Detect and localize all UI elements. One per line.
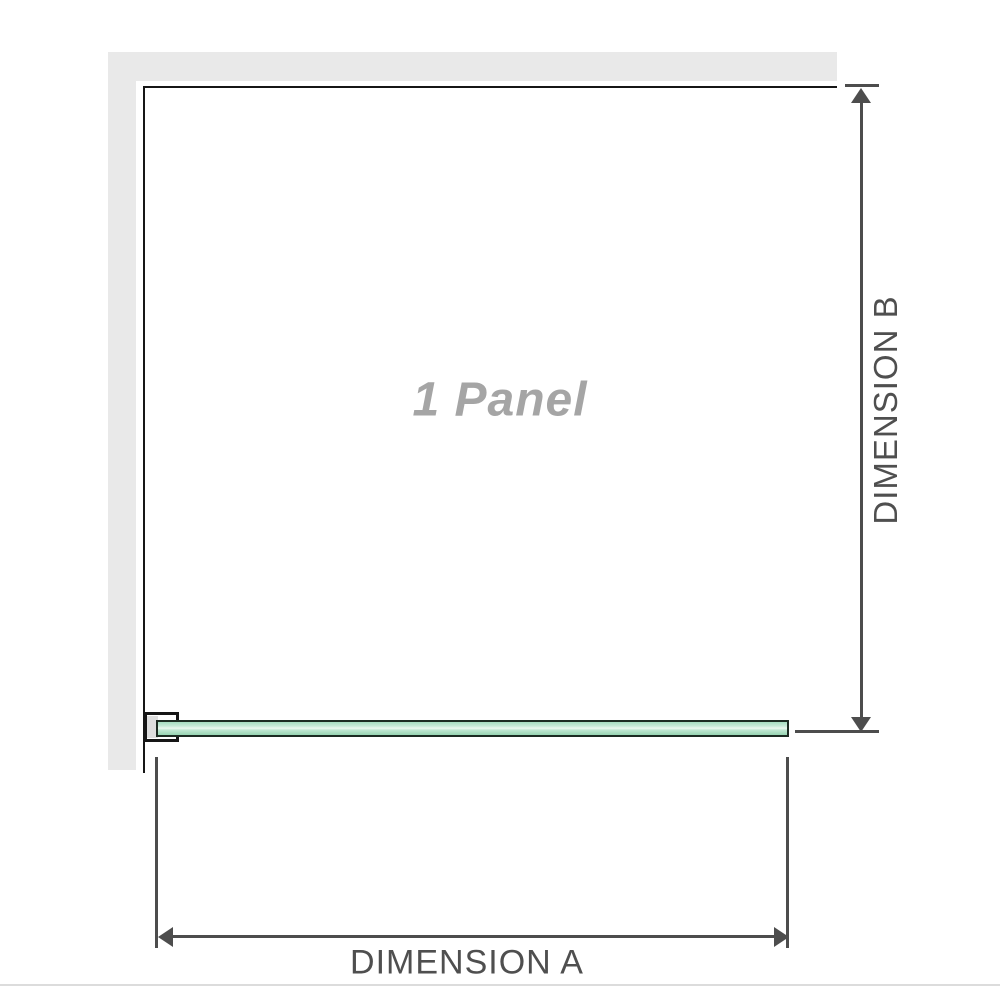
dimension-b-label: DIMENSION B [867, 295, 905, 524]
dimension-a-extension-left [155, 757, 158, 948]
wall-edge-top-line [143, 86, 837, 88]
arrow-left-icon [158, 927, 173, 947]
dimension-a-label: DIMENSION A [350, 944, 584, 983]
panel-count-label: 1 Panel [412, 373, 587, 428]
bottom-divider [0, 984, 1000, 986]
wall-edge-left-line [143, 86, 145, 773]
dimension-b-tick-top [845, 84, 879, 87]
dimension-b-line [860, 95, 863, 723]
dimension-diagram: 1 Panel DIMENSION B DIMENSION A [0, 0, 1000, 1000]
arrow-down-icon [851, 717, 871, 732]
wall-left [108, 52, 136, 770]
dimension-a-extension-right [786, 757, 789, 948]
dimension-a-line [170, 935, 774, 938]
wall-top [108, 52, 837, 81]
glass-panel [156, 720, 789, 737]
arrow-up-icon [851, 88, 871, 103]
arrow-right-icon [774, 927, 789, 947]
